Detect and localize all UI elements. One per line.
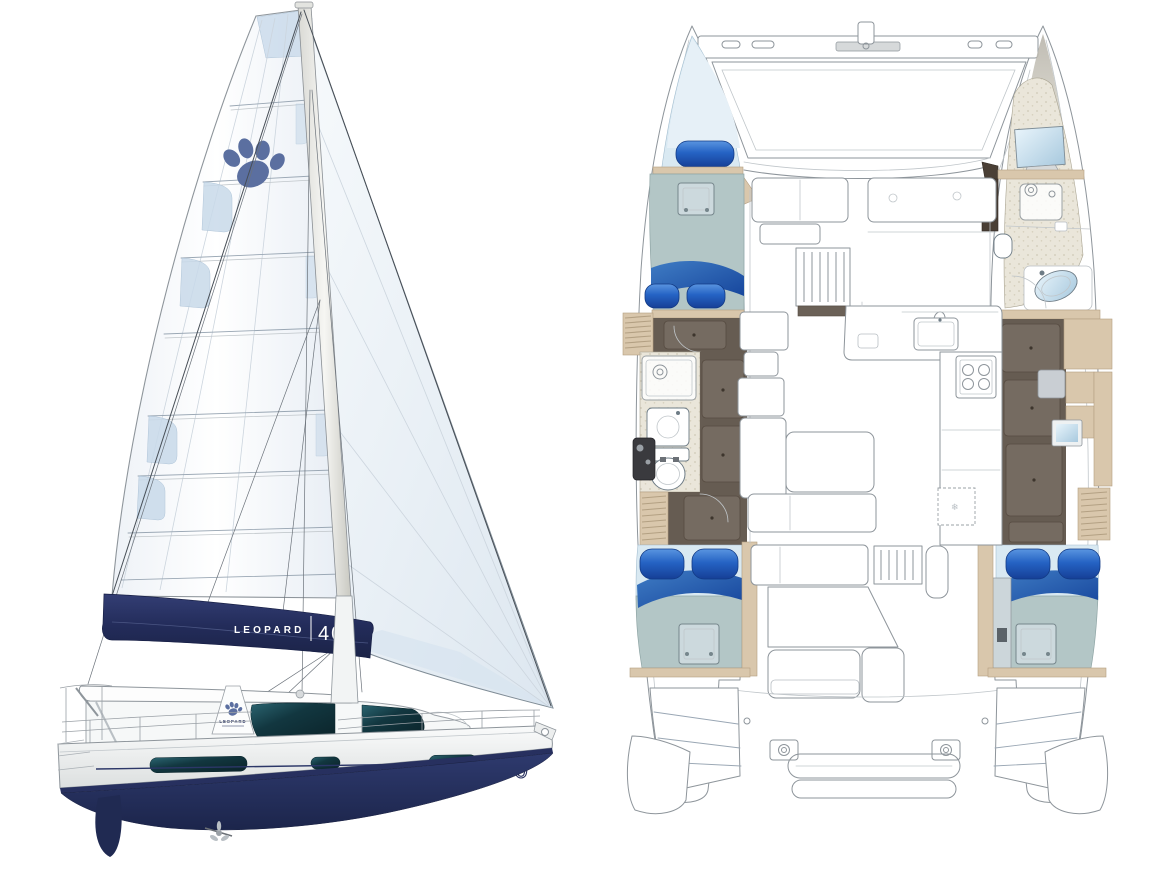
berth-pillow <box>687 284 725 308</box>
mainsail-head-panel <box>257 11 305 58</box>
starboard-corridor <box>996 319 1112 545</box>
forward-lounge-port <box>752 178 848 244</box>
rudder <box>95 795 121 857</box>
appliance <box>1052 420 1082 446</box>
shower <box>642 356 696 400</box>
port-mid-floor <box>640 492 747 545</box>
berth-pillow <box>645 284 679 308</box>
hull-window-mid <box>311 757 340 770</box>
fridge-symbol: ❄ <box>951 502 959 512</box>
port-forward-cabin <box>645 36 744 318</box>
side-view: LEOPARD 40 LEOPARD <box>58 2 556 857</box>
companionway-steps-forward <box>796 248 850 316</box>
deck-hatch <box>679 624 719 664</box>
cockpit-table <box>768 587 898 647</box>
stove <box>956 356 996 398</box>
shower <box>1020 184 1062 220</box>
cockpit-bench-forward <box>751 545 868 585</box>
hardtop-bimini <box>79 686 354 703</box>
winch <box>296 690 304 698</box>
starboard-aft-cabin <box>978 542 1106 677</box>
port-bathroom <box>633 352 747 492</box>
port-cabin-floor <box>623 313 747 355</box>
berth-pillow <box>676 141 734 167</box>
galley-sink <box>914 312 958 350</box>
berth-pillow <box>1006 549 1050 579</box>
deck-hatch <box>678 183 714 215</box>
port-aft-cabin <box>630 542 757 677</box>
dinghy-davit-bar <box>770 740 960 798</box>
berth-pillow <box>640 549 684 579</box>
bow-crossbeam <box>698 22 1038 58</box>
masthead-cap <box>295 2 313 8</box>
deck-plan: ❄ <box>623 22 1112 814</box>
cabin-bulkhead <box>978 542 993 676</box>
swim-wing-starboard <box>1045 736 1108 814</box>
slatted-locker <box>623 313 653 355</box>
swim-wing-port <box>627 736 690 814</box>
berth-pillow <box>1058 549 1100 579</box>
slatted-locker <box>640 492 668 545</box>
berth-pillow <box>692 549 738 579</box>
seat-cube <box>1038 370 1065 398</box>
deck-hatch <box>1016 624 1056 664</box>
slatted-locker <box>1078 488 1110 540</box>
salon: ❄ <box>738 178 1002 545</box>
forward-lounge-starboard <box>868 178 996 232</box>
vanity-sink <box>1024 265 1092 310</box>
dinette-table <box>786 432 874 492</box>
dinette-bench <box>748 494 876 532</box>
shower-unit <box>633 438 655 480</box>
hull-window-aft <box>150 756 247 773</box>
companionway-steps-aft <box>874 546 922 584</box>
boat-illustration: LEOPARD 40 LEOPARD <box>0 0 1165 874</box>
toilet <box>994 234 1012 258</box>
hull-profile: 40 <box>58 722 556 857</box>
boom-sail-cover: LEOPARD 40 <box>102 594 373 658</box>
boom-brand-text: LEOPARD <box>234 625 305 636</box>
cabin-cabinet <box>993 578 1011 668</box>
fridge: ❄ <box>938 488 975 525</box>
